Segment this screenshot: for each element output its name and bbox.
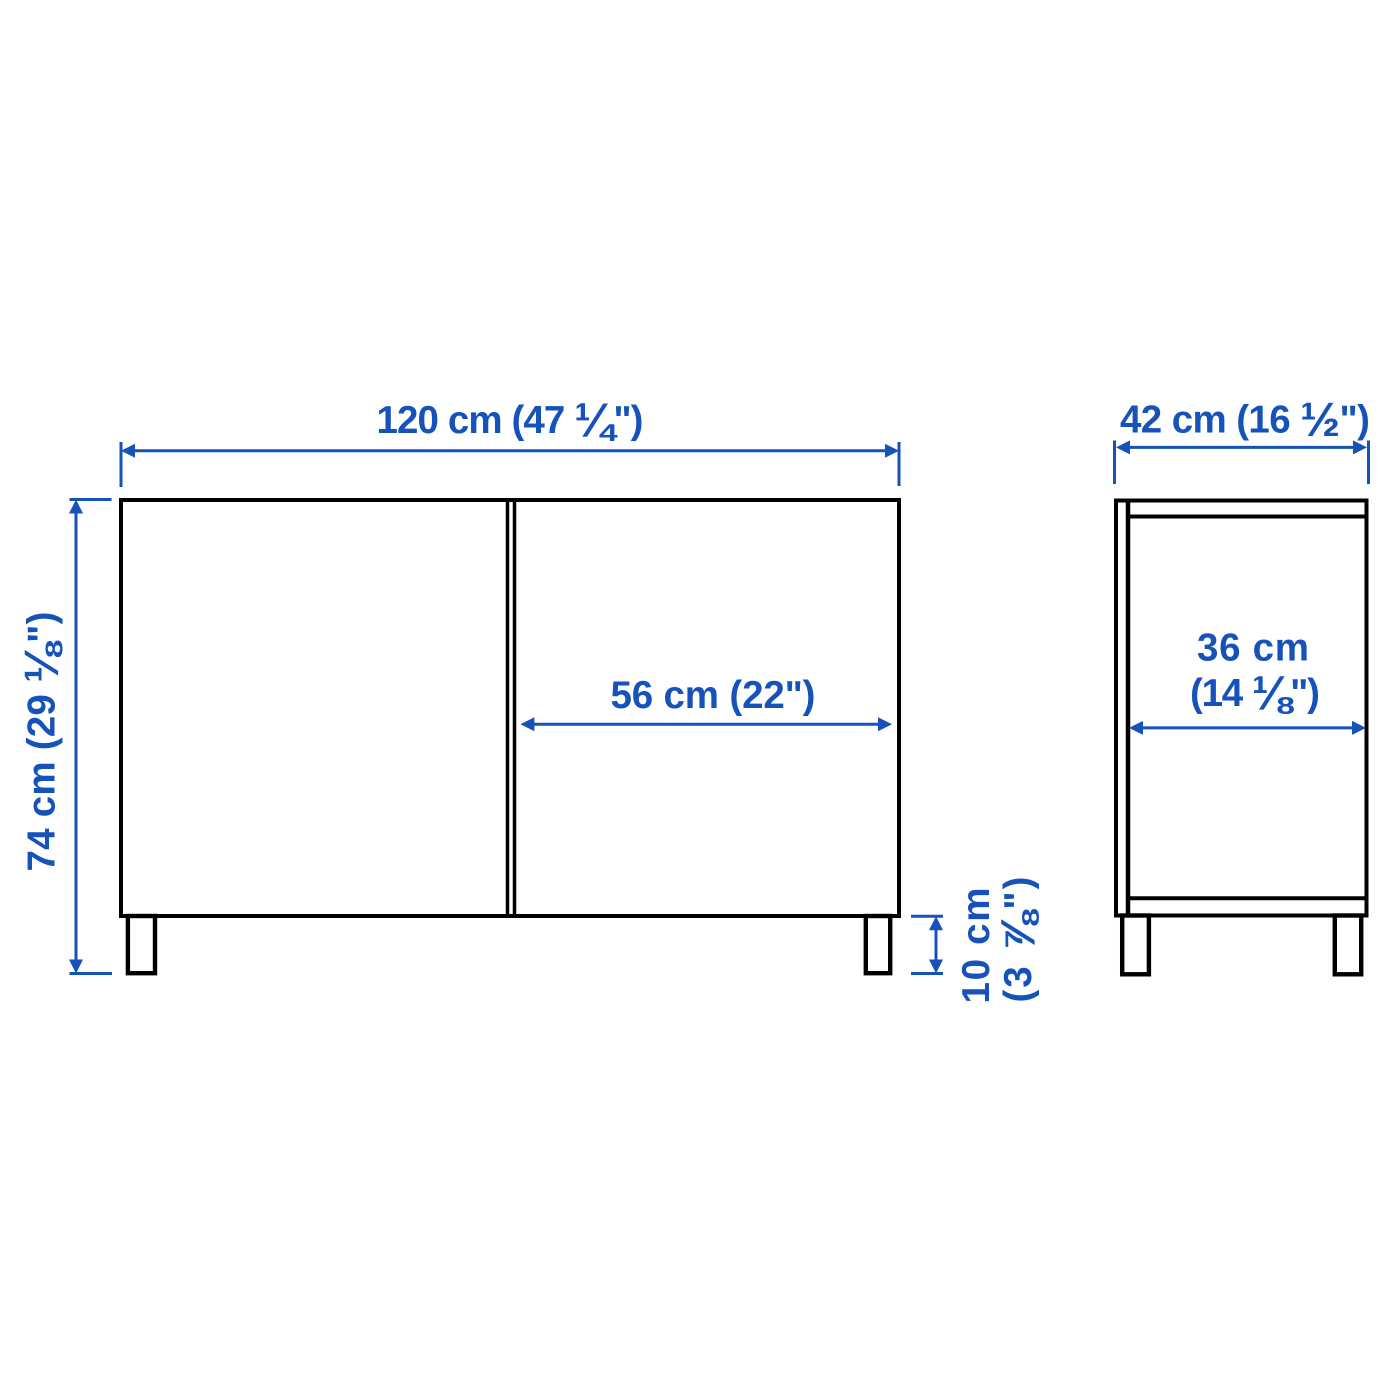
svg-text:56 cm (22"): 56 cm (22") xyxy=(611,674,816,717)
svg-text:120 cm (47 ¼"): 120 cm (47 ¼") xyxy=(377,395,644,448)
svg-text:(3 ⅞"): (3 ⅞") xyxy=(993,877,1046,1003)
svg-text:36 cm: 36 cm xyxy=(1197,627,1309,670)
svg-text:42 cm (16 ½"): 42 cm (16 ½") xyxy=(1120,394,1370,447)
svg-text:74 cm (29 ⅛"): 74 cm (29 ⅛") xyxy=(16,612,69,872)
svg-text:(14 ⅛"): (14 ⅛") xyxy=(1190,668,1320,721)
